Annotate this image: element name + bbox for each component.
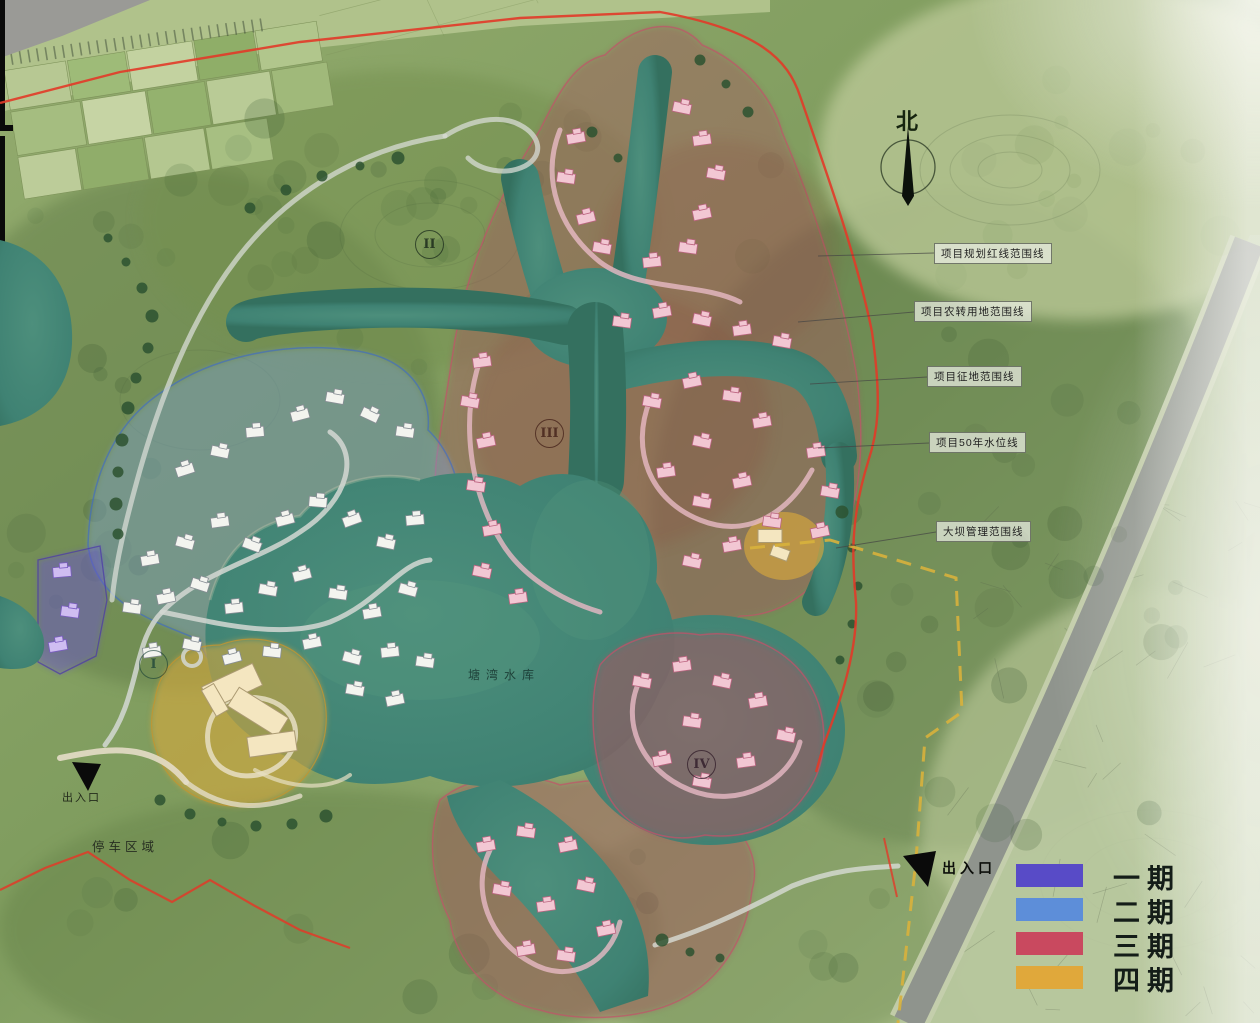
area-marker-3: III <box>535 419 564 448</box>
legend-swatch-phase4 <box>1016 966 1083 989</box>
frame-notch <box>0 125 13 131</box>
annotation-dam-boundary: 大坝管理范围线 <box>936 521 1031 542</box>
entrance-right-label: 出入口 <box>942 858 996 878</box>
site-master-plan: 北 塘湾水库 停车区域 出入口 出入口 项目规划红线范围线 项目农转用地范围线 … <box>0 0 1260 1023</box>
legend-label-phase4: 四期 <box>1113 959 1181 998</box>
parking-label: 停车区域 <box>92 836 158 855</box>
annotation-water-level: 项目50年水位线 <box>929 432 1026 453</box>
area-marker-1: I <box>139 650 168 679</box>
frame-bar <box>0 0 5 125</box>
legend-swatch-phase2 <box>1016 898 1083 921</box>
west-channel <box>246 308 565 325</box>
lake-name: 塘湾水库 <box>468 666 540 683</box>
area-marker-4: IV <box>687 750 716 779</box>
center-channel <box>595 330 598 480</box>
north-label: 北 <box>896 104 918 136</box>
annotation-land-acquisition: 项目征地范围线 <box>927 366 1022 387</box>
annotation-farmland-conversion: 项目农转用地范围线 <box>914 301 1032 322</box>
legend-swatch-phase3 <box>1016 932 1083 955</box>
entrance-left-label: 出入口 <box>62 789 101 805</box>
area-marker-2: II <box>415 230 444 259</box>
legend-swatch-phase1 <box>1016 864 1083 887</box>
annotation-red-line: 项目规划红线范围线 <box>934 243 1052 264</box>
